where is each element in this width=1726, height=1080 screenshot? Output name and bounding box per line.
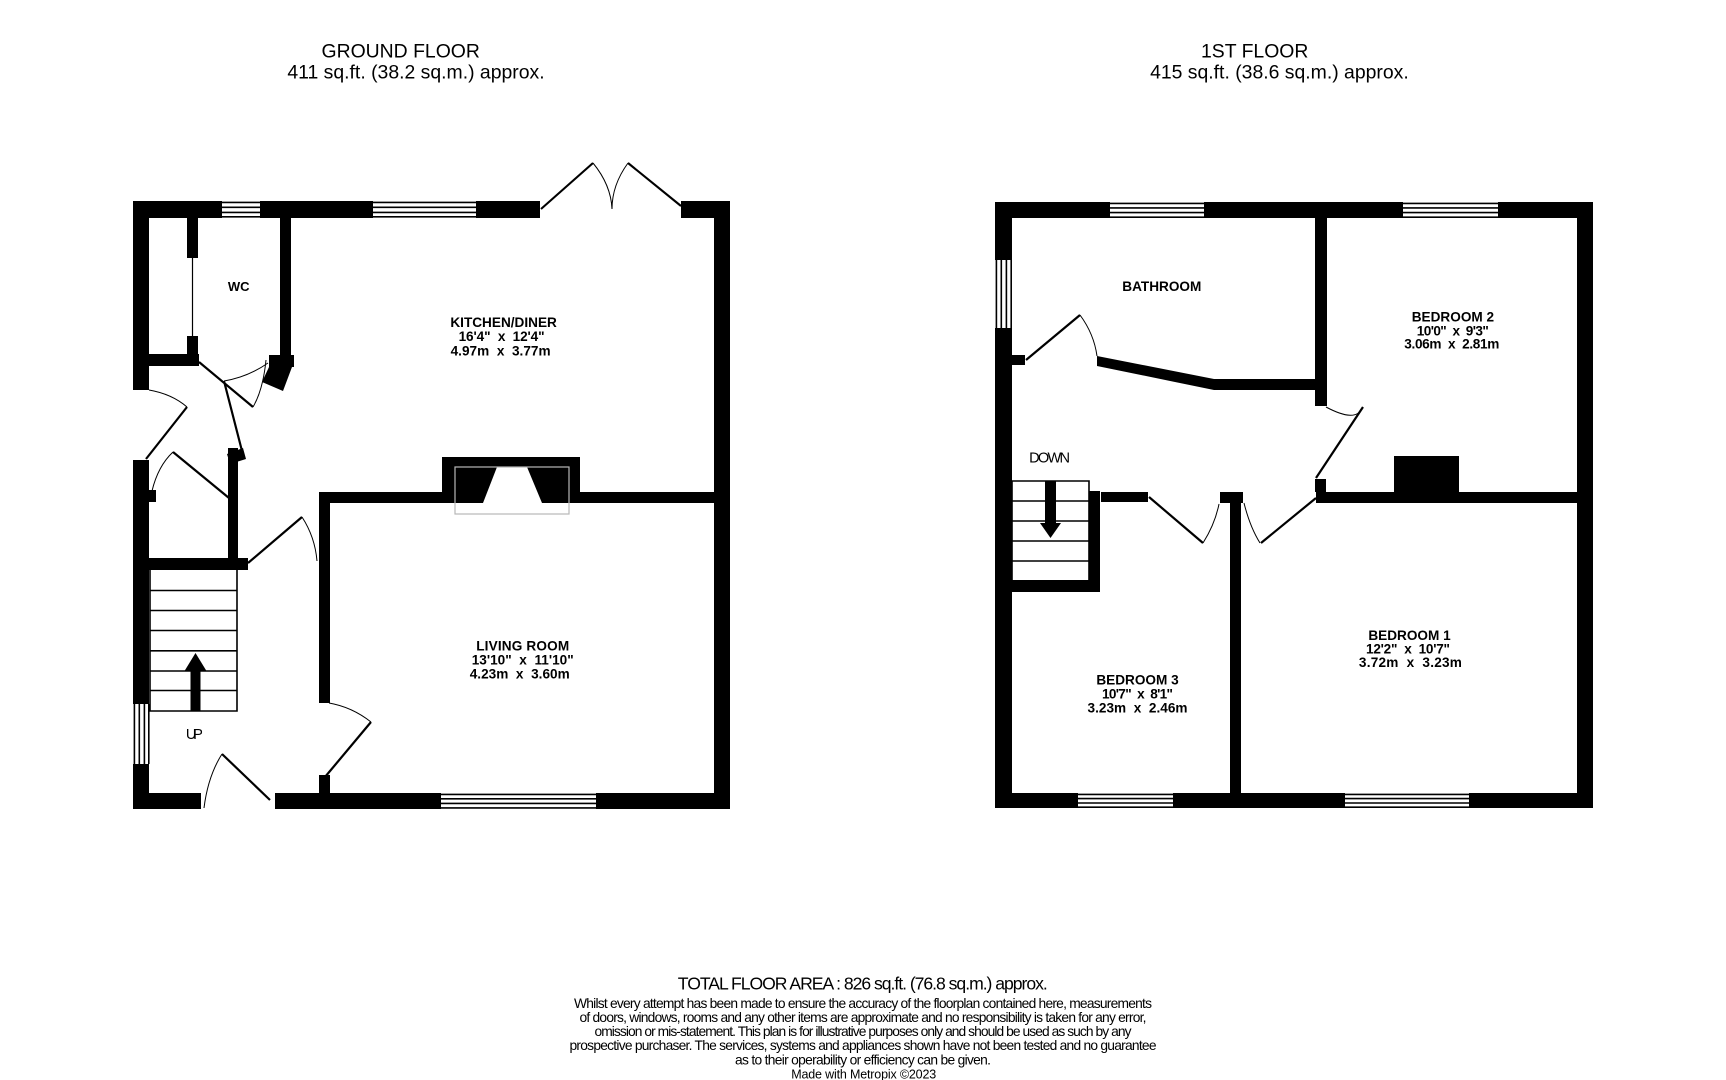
svg-text:3.06m x 2.81m: 3.06m x 2.81m [1404, 337, 1499, 352]
svg-text:Made with Metropix ©2023: Made with Metropix ©2023 [791, 1067, 936, 1080]
svg-text:KITCHEN/DINER: KITCHEN/DINER [450, 315, 557, 330]
svg-text:13'10" x 11'10": 13'10" x 11'10" [472, 652, 574, 667]
svg-text:4.23m x 3.60m: 4.23m x 3.60m [470, 666, 570, 681]
svg-text:Whilst every attempt has been: Whilst every attempt has been made to en… [574, 996, 1152, 1011]
svg-text:415 sq.ft. (38.6 sq.m.) approx: 415 sq.ft. (38.6 sq.m.) approx. [1150, 61, 1409, 83]
svg-text:of doors, windows, rooms and a: of doors, windows, rooms and any other i… [580, 1010, 1147, 1025]
svg-text:BATHROOM: BATHROOM [1122, 279, 1201, 294]
svg-text:10'7" x 8'1": 10'7" x 8'1" [1102, 686, 1173, 701]
svg-text:BEDROOM 2: BEDROOM 2 [1412, 310, 1495, 325]
svg-text:1ST FLOOR: 1ST FLOOR [1201, 41, 1308, 63]
svg-text:4.97m x 3.77m: 4.97m x 3.77m [451, 343, 551, 358]
svg-text:TOTAL FLOOR AREA : 826 sq.ft.: TOTAL FLOOR AREA : 826 sq.ft. (76.8 sq.m… [678, 974, 1048, 994]
svg-text:WC: WC [228, 279, 250, 294]
svg-text:3.72m x 3.23m: 3.72m x 3.23m [1359, 655, 1462, 670]
svg-text:3.23m x 2.46m: 3.23m x 2.46m [1088, 700, 1188, 715]
svg-text:LIVING ROOM: LIVING ROOM [476, 639, 569, 654]
svg-text:omission or mis-statement. Thi: omission or mis-statement. This plan is … [595, 1024, 1132, 1039]
svg-text:GROUND FLOOR: GROUND FLOOR [322, 40, 480, 62]
svg-text:as to their operability or eff: as to their operability or efficiency ca… [735, 1052, 991, 1067]
svg-text:prospective purchaser. The ser: prospective purchaser. The services, sys… [570, 1038, 1157, 1053]
svg-text:DOWN: DOWN [1029, 450, 1070, 466]
svg-text:UP: UP [186, 727, 203, 743]
svg-text:411 sq.ft. (38.2 sq.m.) approx: 411 sq.ft. (38.2 sq.m.) approx. [287, 61, 544, 83]
svg-text:16'4" x 12'4": 16'4" x 12'4" [459, 329, 545, 344]
svg-text:BEDROOM 3: BEDROOM 3 [1096, 673, 1179, 688]
